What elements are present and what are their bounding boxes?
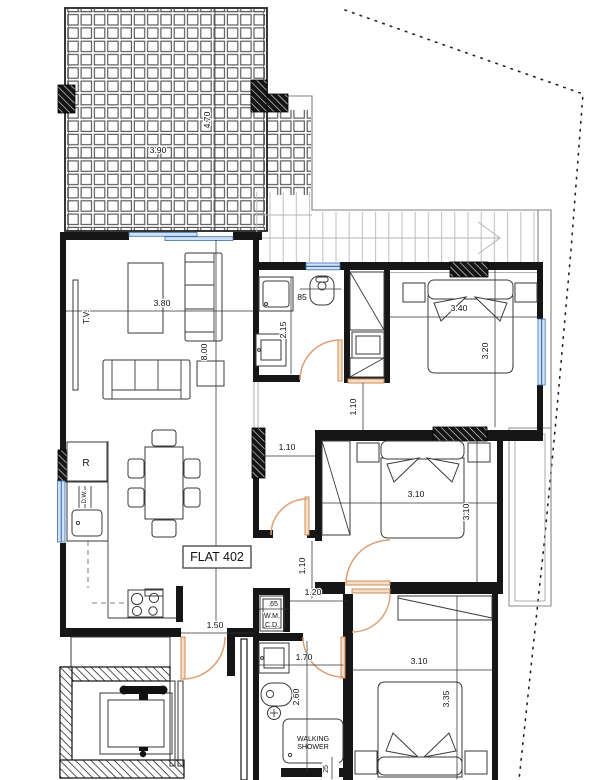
plot-boundary-dotted-line — [345, 10, 583, 780]
fridge-label: R — [82, 458, 89, 469]
bathroom1 — [256, 276, 334, 366]
dim-wc-niche: 85 — [297, 292, 307, 302]
flat-label: FLAT 402 — [190, 550, 244, 564]
dining-table — [145, 447, 183, 519]
bed2-headboard — [381, 441, 464, 459]
bed3-bolster — [378, 757, 462, 775]
side-table — [197, 361, 224, 386]
bathroom1-door — [300, 340, 342, 381]
floor-plan-drawing: WALKING SHOWER 3 — [0, 0, 601, 780]
toilet1 — [310, 276, 334, 305]
dim-bedroom2-width: 3.10 — [408, 489, 425, 499]
lobby-shaft-box — [71, 637, 170, 668]
living-window-pane2 — [165, 237, 233, 241]
elevator-door-rail2 — [178, 681, 183, 766]
bedroom2 — [322, 441, 490, 538]
column-bedroom1-south — [433, 427, 487, 441]
nightstand — [465, 751, 487, 774]
lobby-side-wall — [241, 639, 247, 780]
terrace-tiles — [66, 9, 266, 231]
floor-drain — [268, 707, 281, 720]
dim-bath2-width: 1.70 — [296, 652, 313, 662]
dim-bath2-depth: 2.60 — [291, 688, 301, 705]
elevator-wall-bottom — [60, 760, 184, 778]
corridor-door — [271, 497, 309, 535]
elevator-wall-top — [60, 667, 170, 681]
column-hall-corner — [252, 428, 265, 478]
chair-top — [152, 430, 176, 446]
entrance-door — [181, 637, 225, 679]
dim-bedroom1-passage: 1.10 — [348, 398, 358, 415]
chair-bottom — [152, 520, 176, 537]
floor-plan-page: WALKING SHOWER 3 — [0, 0, 601, 780]
tv-label: T.V. — [81, 310, 91, 324]
bedroom1-door-leaf — [348, 379, 384, 383]
dim-entrance: 1.50 — [207, 620, 224, 630]
sofa-horizontal — [103, 360, 190, 399]
elevator-car — [100, 693, 172, 754]
dining-set — [128, 430, 200, 537]
dim-bedroom3-depth: 3.35 — [441, 690, 451, 707]
bed1-headboard — [428, 280, 513, 299]
dim-terrace-height: 4.70 — [202, 111, 212, 128]
nightstand — [403, 283, 425, 302]
cooktop — [128, 589, 163, 617]
nightstand — [515, 283, 537, 302]
bedroom1-window-pane2 — [542, 319, 545, 385]
kitchen-window-pane2 — [61, 481, 65, 542]
bedroom2-door — [346, 540, 390, 585]
dim-bedroom1-depth: 3.20 — [480, 342, 490, 359]
bedroom1 — [403, 280, 537, 373]
dim-hall-width: 1.10 — [279, 442, 296, 452]
elevator-car-inner — [108, 700, 164, 747]
dishwasher-label: D.W. — [82, 490, 88, 503]
wm-label: W.M. — [264, 613, 280, 620]
tv-unit — [73, 280, 78, 390]
bathroom-window-pane1 — [306, 263, 340, 266]
dim-living-width: 3.80 — [154, 298, 171, 308]
chair-left1 — [128, 459, 144, 478]
walking-shower-label-line1: WALKING — [297, 736, 329, 743]
nightstand — [357, 443, 379, 462]
toilet2 — [261, 683, 292, 706]
walking-shower-label-line2: SHOWER — [297, 744, 329, 751]
sofa-vertical — [185, 253, 222, 341]
dim-wm-width: .65 — [268, 601, 278, 608]
column-bedroom1-north — [450, 262, 488, 277]
column-terrace-corner — [251, 80, 267, 112]
living-room — [73, 253, 224, 399]
chair-right1 — [184, 459, 200, 478]
dim-bath1-depth: 2.15 — [278, 321, 288, 338]
dim-bedroom2-depth: 3.10 — [461, 503, 471, 520]
dim-bedroom3-width: 3.10 — [411, 656, 428, 666]
dim-hall2: 1.10 — [297, 557, 307, 574]
chair-left2 — [128, 488, 144, 507]
elevator-lobby — [60, 637, 184, 778]
elevator-buffer-symbol — [139, 747, 148, 757]
elevator-motor-symbol — [120, 686, 168, 701]
stair-landing-treads — [255, 192, 312, 262]
nightstand — [355, 751, 377, 774]
column-terrace-left — [58, 85, 75, 113]
dim-shower-edge: 25 — [323, 765, 330, 773]
bedroom1-window-pane1 — [538, 319, 541, 385]
dim-bedroom1-width: 3.40 — [451, 303, 468, 313]
dim-passage: 1.20 — [305, 587, 322, 597]
terrace-tiles-extension — [266, 110, 311, 195]
stair-treads — [312, 212, 538, 262]
column-terrace-corner2 — [267, 94, 288, 112]
kitchen-window-pane1 — [58, 481, 62, 542]
nightstand — [468, 443, 490, 462]
cd-label: C.D. — [265, 622, 279, 629]
bedroom3-door — [352, 589, 390, 632]
hall-closet — [350, 272, 384, 377]
chair-right2 — [184, 488, 200, 507]
bathroom-window-pane2 — [306, 267, 340, 270]
dim-flat-depth: 8.00 — [199, 343, 209, 360]
dim-terrace-width: 3.90 — [150, 145, 167, 155]
living-window-pane1 — [129, 233, 197, 237]
